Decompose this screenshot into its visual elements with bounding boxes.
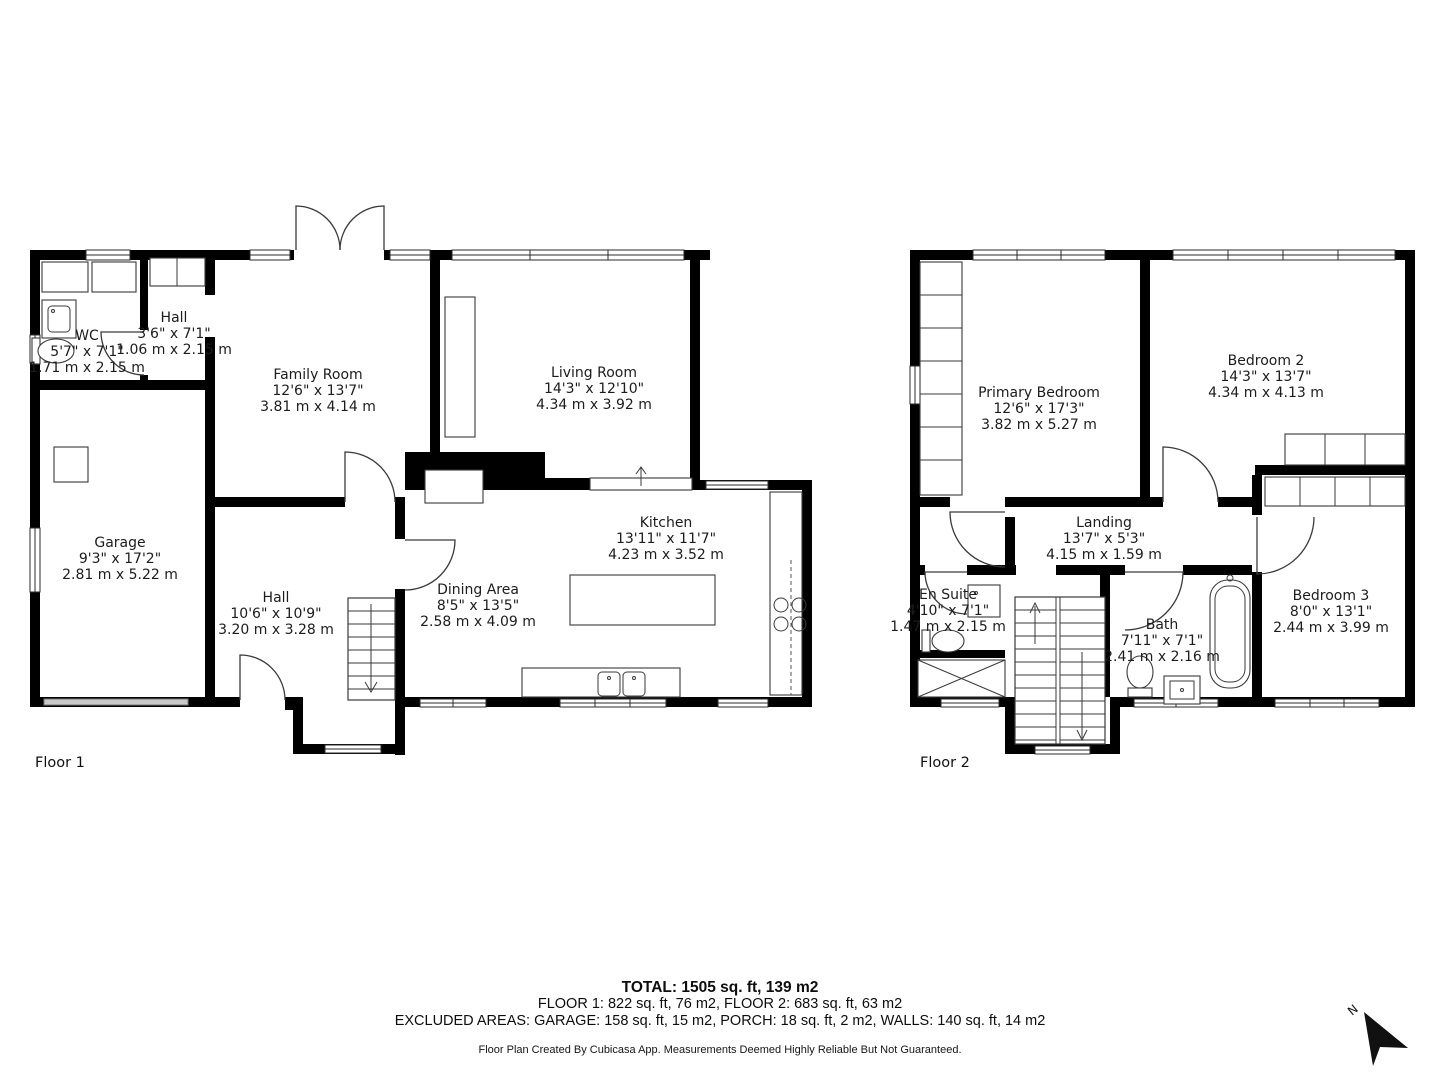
window: [973, 250, 1105, 260]
window: [560, 699, 666, 707]
floor1-plan: [30, 206, 812, 755]
room-imperial: 7'11" x 7'1": [1121, 633, 1203, 649]
room-name: En Suite: [919, 587, 977, 603]
french-door-right: [340, 206, 384, 250]
room-metric: 4.34 m x 4.13 m: [1208, 385, 1324, 401]
room-metric: 1.47 m x 2.15 m: [890, 619, 1006, 635]
room-imperial: 12'6" x 17'3": [993, 401, 1084, 417]
window: [30, 528, 40, 592]
room-imperial: 8'0" x 13'1": [1290, 604, 1372, 620]
french-door-left: [296, 206, 340, 250]
porch-opening: [325, 745, 381, 753]
wc-cabinet: [42, 262, 88, 292]
floor1-stairs: [348, 598, 395, 700]
kitchen-island: [570, 575, 715, 625]
room-name: Garage: [94, 535, 145, 551]
room-imperial: 4'10" x 7'1": [907, 603, 989, 619]
window: [250, 250, 290, 260]
bedroom3-door: [1257, 517, 1314, 574]
room-name: Landing: [1076, 515, 1132, 531]
window: [941, 699, 999, 707]
floor1-caption: Floor 1: [35, 755, 85, 771]
summary-excluded: EXCLUDED AREAS: GARAGE: 158 sq. ft, 15 m…: [0, 1013, 1440, 1030]
window: [1035, 746, 1090, 754]
summary-floors: FLOOR 1: 822 sq. ft, 76 m2, FLOOR 2: 683…: [0, 996, 1440, 1013]
floor2-caption: Floor 2: [920, 755, 970, 771]
room-name: Bedroom 3: [1293, 588, 1370, 604]
room-label-primary-bedroom: Primary Bedroom 12'6" x 17'3" 3.82 m x 5…: [978, 385, 1100, 433]
bedroom2-door: [1163, 447, 1218, 502]
room-name: Bedroom 2: [1228, 353, 1305, 369]
summary-block: TOTAL: 1505 sq. ft, 139 m2 FLOOR 1: 822 …: [0, 979, 1440, 1029]
kitchen-counter-right: [770, 492, 802, 695]
room-imperial: 9'3" x 17'2": [79, 551, 161, 567]
floor-plan-page: N WC 5'7" x 7'1" 1.71 m x 2.15 m Hall 3'…: [0, 0, 1440, 1080]
room-metric: 4.15 m x 1.59 m: [1046, 547, 1162, 563]
appliance: [425, 470, 483, 503]
room-label-en-suite: En Suite 4'10" x 7'1" 1.47 m x 2.15 m: [890, 587, 1006, 635]
room-metric: 4.34 m x 3.92 m: [536, 397, 652, 413]
room-imperial: 10'6" x 10'9": [230, 606, 321, 622]
window: [452, 250, 684, 260]
room-label-bedroom-3: Bedroom 3 8'0" x 13'1" 2.44 m x 3.99 m: [1273, 588, 1389, 636]
room-name: Family Room: [273, 367, 362, 383]
room-label-garage: Garage 9'3" x 17'2" 2.81 m x 5.22 m: [62, 535, 178, 583]
room-label-hall: Hall 10'6" x 10'9" 3.20 m x 3.28 m: [218, 590, 334, 638]
room-imperial: 13'7" x 5'3": [1063, 531, 1145, 547]
room-label-living-room: Living Room 14'3" x 12'10" 4.34 m x 3.92…: [536, 365, 652, 413]
room-name: Hall: [161, 310, 188, 326]
room-label-bedroom-2: Bedroom 2 14'3" x 13'7" 4.34 m x 4.13 m: [1208, 353, 1324, 401]
bedroom2-closet: [1285, 434, 1405, 465]
summary-total: TOTAL: 1505 sq. ft, 139 m2: [0, 979, 1440, 996]
front-door: [240, 655, 285, 700]
window: [86, 250, 130, 260]
room-name: Primary Bedroom: [978, 385, 1100, 401]
window: [718, 699, 768, 707]
room-label-hall-small: Hall 3'6" x 7'1" 1.06 m x 2.15 m: [116, 310, 232, 358]
floor2-stairs: [1015, 597, 1105, 744]
room-metric: 1.71 m x 2.15 m: [29, 360, 145, 376]
room-imperial: 8'5" x 13'5": [437, 598, 519, 614]
room-name: Kitchen: [640, 515, 693, 531]
room-label-kitchen: Kitchen 13'11" x 11'7" 4.23 m x 3.52 m: [608, 515, 724, 563]
window: [1275, 699, 1379, 707]
window: [390, 250, 430, 260]
room-metric: 1.06 m x 2.15 m: [116, 342, 232, 358]
room-label-bath: Bath 7'11" x 7'1" 2.41 m x 2.16 m: [1104, 617, 1220, 665]
room-label-landing: Landing 13'7" x 5'3" 4.15 m x 1.59 m: [1046, 515, 1162, 563]
room-imperial: 14'3" x 12'10": [544, 381, 644, 397]
room-name: Bath: [1146, 617, 1179, 633]
room-imperial: 13'11" x 11'7": [616, 531, 716, 547]
garage-door: [44, 699, 188, 705]
bath-toilet-tank: [1128, 688, 1152, 697]
window: [910, 366, 920, 404]
room-metric: 3.81 m x 4.14 m: [260, 399, 376, 415]
room-metric: 2.41 m x 2.16 m: [1104, 649, 1220, 665]
room-name: Living Room: [551, 365, 637, 381]
room-metric: 3.20 m x 3.28 m: [218, 622, 334, 638]
room-label-dining-area: Dining Area 8'5" x 13'5" 2.58 m x 4.09 m: [420, 582, 536, 630]
room-imperial: 5'7" x 7'1": [50, 344, 123, 360]
family-door: [345, 452, 395, 502]
living-builtin: [445, 297, 475, 437]
room-name: WC: [75, 328, 99, 344]
window: [420, 699, 486, 707]
room-metric: 2.58 m x 4.09 m: [420, 614, 536, 630]
window: [1173, 250, 1395, 260]
attribution: Floor Plan Created By Cubicasa App. Meas…: [0, 1044, 1440, 1056]
floor2-plan: [910, 250, 1415, 754]
room-imperial: 3'6" x 7'1": [137, 326, 210, 342]
window: [706, 481, 768, 489]
room-imperial: 14'3" x 13'7": [1220, 369, 1311, 385]
room-metric: 4.23 m x 3.52 m: [608, 547, 724, 563]
room-imperial: 12'6" x 13'7": [272, 383, 363, 399]
room-name: Hall: [263, 590, 290, 606]
room-label-family-room: Family Room 12'6" x 13'7" 3.81 m x 4.14 …: [260, 367, 376, 415]
room-metric: 2.81 m x 5.22 m: [62, 567, 178, 583]
room-name: Dining Area: [437, 582, 519, 598]
primary-bedroom-door: [950, 512, 1005, 567]
bath-sink: [1164, 676, 1200, 704]
room-metric: 3.82 m x 5.27 m: [981, 417, 1097, 433]
wc-cabinet: [92, 262, 136, 292]
garage-unit: [54, 447, 88, 482]
room-metric: 2.44 m x 3.99 m: [1273, 620, 1389, 636]
